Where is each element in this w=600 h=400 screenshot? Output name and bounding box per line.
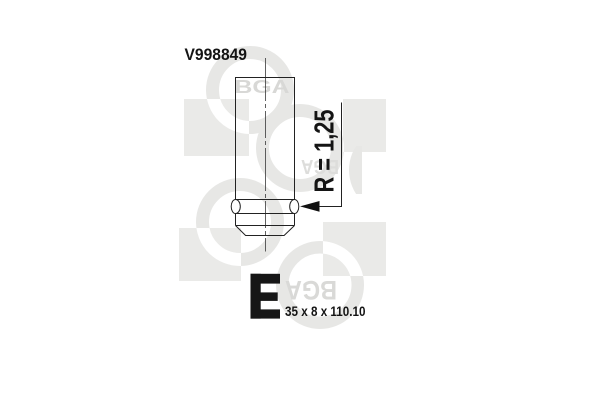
svg-text:BGA: BGA bbox=[285, 275, 337, 305]
svg-text:35 x 8 x 110.10: 35 x 8 x 110.10 bbox=[285, 303, 366, 319]
svg-text:BGA: BGA bbox=[235, 77, 290, 97]
svg-text:V998849: V998849 bbox=[185, 46, 248, 64]
svg-text:R = 1,25: R = 1,25 bbox=[308, 110, 339, 193]
